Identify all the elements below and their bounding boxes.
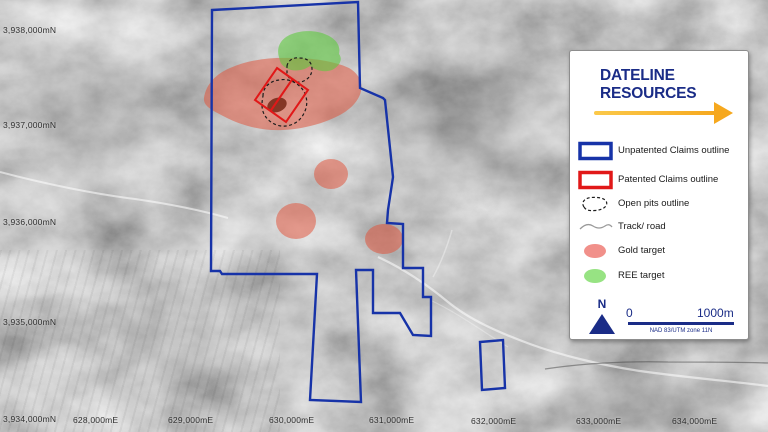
legend-item-patented: Patented Claims outline (578, 170, 740, 190)
legend-item-label: Unpatented Claims outline (618, 141, 729, 161)
track-road-path (0, 172, 228, 218)
datum-label: NAD 83/UTM zone 11N (623, 328, 739, 334)
northing-label: 3,938,000mN (3, 25, 56, 35)
legend-item-gold-target: Gold target (578, 241, 740, 261)
logo-title-line1: DATELINE (600, 68, 675, 84)
northing-label: 3,936,000mN (3, 217, 56, 227)
easting-label: 629,000mE (168, 415, 213, 425)
gold-target-blob (314, 159, 348, 189)
easting-label: 632,000mE (471, 416, 516, 426)
scale-start-label: 0 (626, 306, 633, 320)
legend-item-label: Track/ road (618, 217, 666, 237)
gold-target-blob (276, 203, 316, 239)
open-pits-swatch-icon (578, 194, 614, 214)
unpatented-claims-outline-south (480, 340, 505, 390)
legend-panel: DATELINE RESOURCES Unpatented Claims out… (569, 50, 749, 340)
gold-target-swatch-icon (578, 241, 614, 261)
easting-label: 628,000mE (73, 415, 118, 425)
north-arrow-icon (589, 314, 615, 334)
gold-target-blob (365, 224, 403, 254)
logo-arrow-icon (594, 111, 716, 115)
legend-item-label: Open pits outline (618, 194, 689, 214)
patented-swatch-icon (578, 170, 614, 190)
easting-label: 633,000mE (576, 416, 621, 426)
easting-label: 634,000mE (672, 416, 717, 426)
easting-label: 630,000mE (269, 415, 314, 425)
unpatented-swatch-icon (578, 141, 614, 161)
track-road-path (433, 230, 452, 277)
ree-target-swatch-icon (578, 266, 614, 286)
legend-item-track-road: Track/ road (578, 217, 740, 237)
legend-item-label: REE target (618, 266, 664, 286)
northing-label: 3,934,000mN (3, 414, 56, 424)
claims-map-figure: 3,938,000mN 3,937,000mN 3,936,000mN 3,93… (0, 0, 768, 432)
logo-arrow-icon (714, 102, 733, 124)
northing-label: 3,937,000mN (3, 120, 56, 130)
scale-end-label: 1000m (697, 306, 734, 320)
north-label: N (592, 297, 612, 311)
northing-label: 3,935,000mN (3, 317, 56, 327)
legend-item-unpatented: Unpatented Claims outline (578, 141, 740, 161)
legend-item-label: Gold target (618, 241, 665, 261)
scale-bar (628, 322, 734, 325)
logo-title-line2: RESOURCES (600, 86, 696, 102)
track-road-path (545, 362, 768, 369)
legend-item-open-pits: Open pits outline (578, 194, 740, 214)
track-road-swatch-icon (578, 217, 614, 237)
legend-item-ree-target: REE target (578, 266, 740, 286)
legend-item-label: Patented Claims outline (618, 170, 718, 190)
easting-label: 631,000mE (369, 415, 414, 425)
